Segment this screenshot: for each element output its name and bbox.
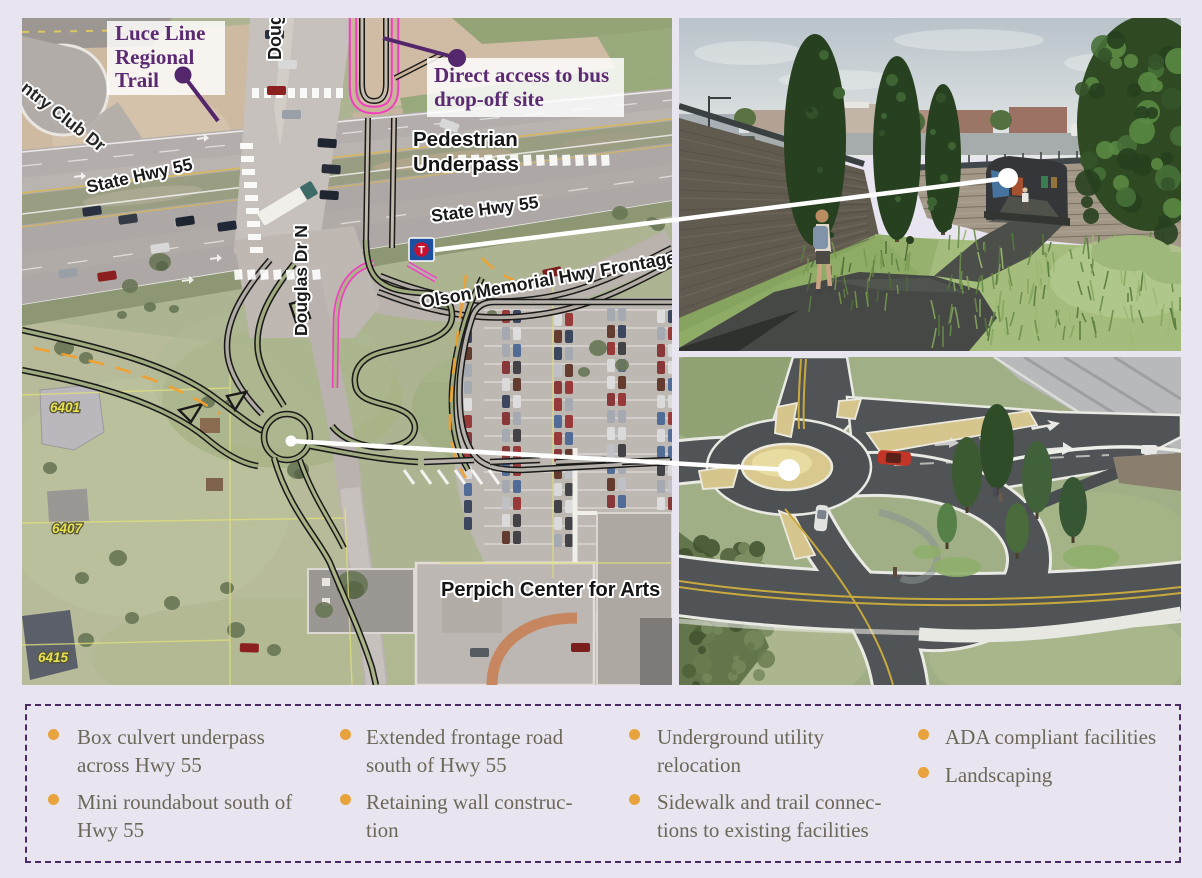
svg-text:Pedestrian: Pedestrian [413,128,518,151]
svg-text:6415: 6415 [38,650,69,665]
svg-text:T: T [418,245,425,257]
svg-text:Underpass: Underpass [413,153,519,176]
svg-text:Douglas Dr: Douglas Dr [265,18,285,60]
svg-text:Perpich Center for Arts: Perpich Center for Arts [441,579,660,601]
svg-text:Douglas Dr N: Douglas Dr N [291,225,311,336]
svg-text:6407: 6407 [52,521,84,536]
svg-text:6401: 6401 [50,400,80,415]
